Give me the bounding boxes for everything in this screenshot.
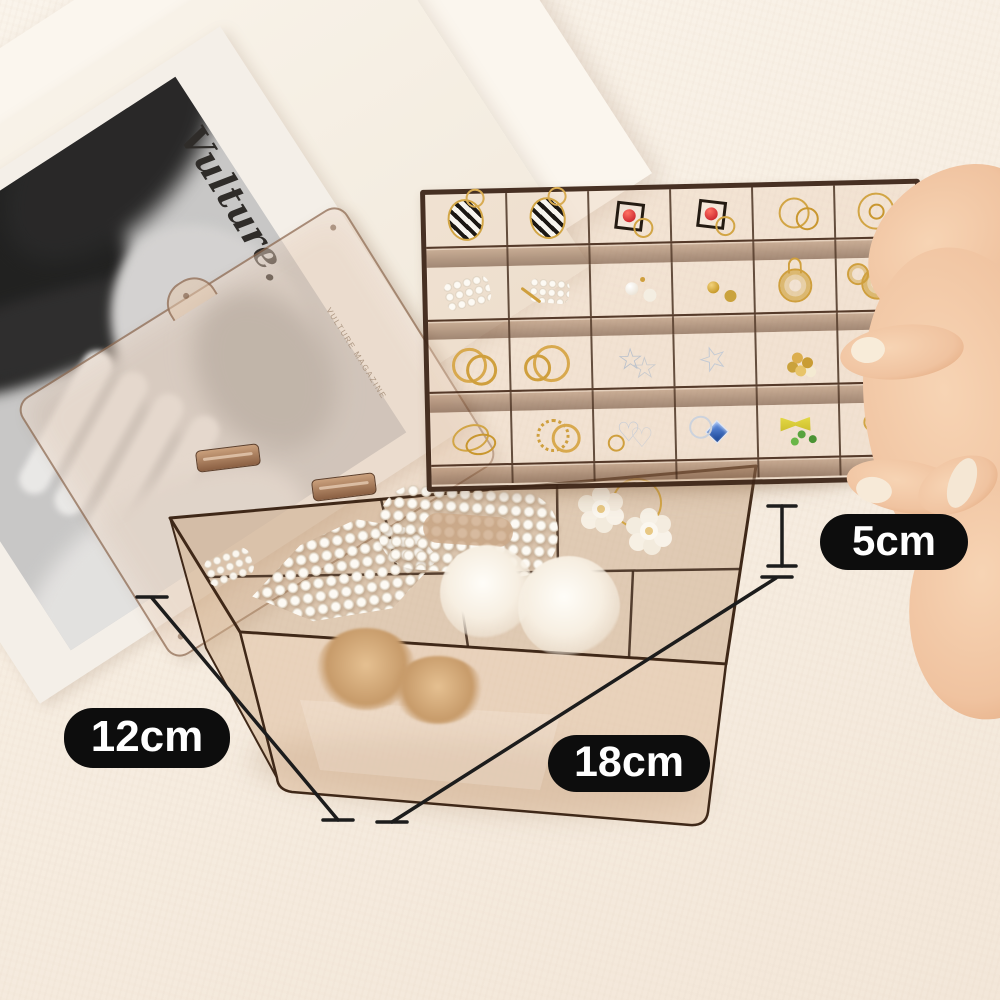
hand-holding-tray <box>0 0 1000 1000</box>
screenshot-canvas: Vulture. VULTURE MAGAZINE <box>0 0 1000 1000</box>
height-dimension-badge: 5cm <box>820 514 968 570</box>
width-dimension-badge: 12cm <box>64 708 230 768</box>
length-dimension-badge: 18cm <box>548 735 710 792</box>
